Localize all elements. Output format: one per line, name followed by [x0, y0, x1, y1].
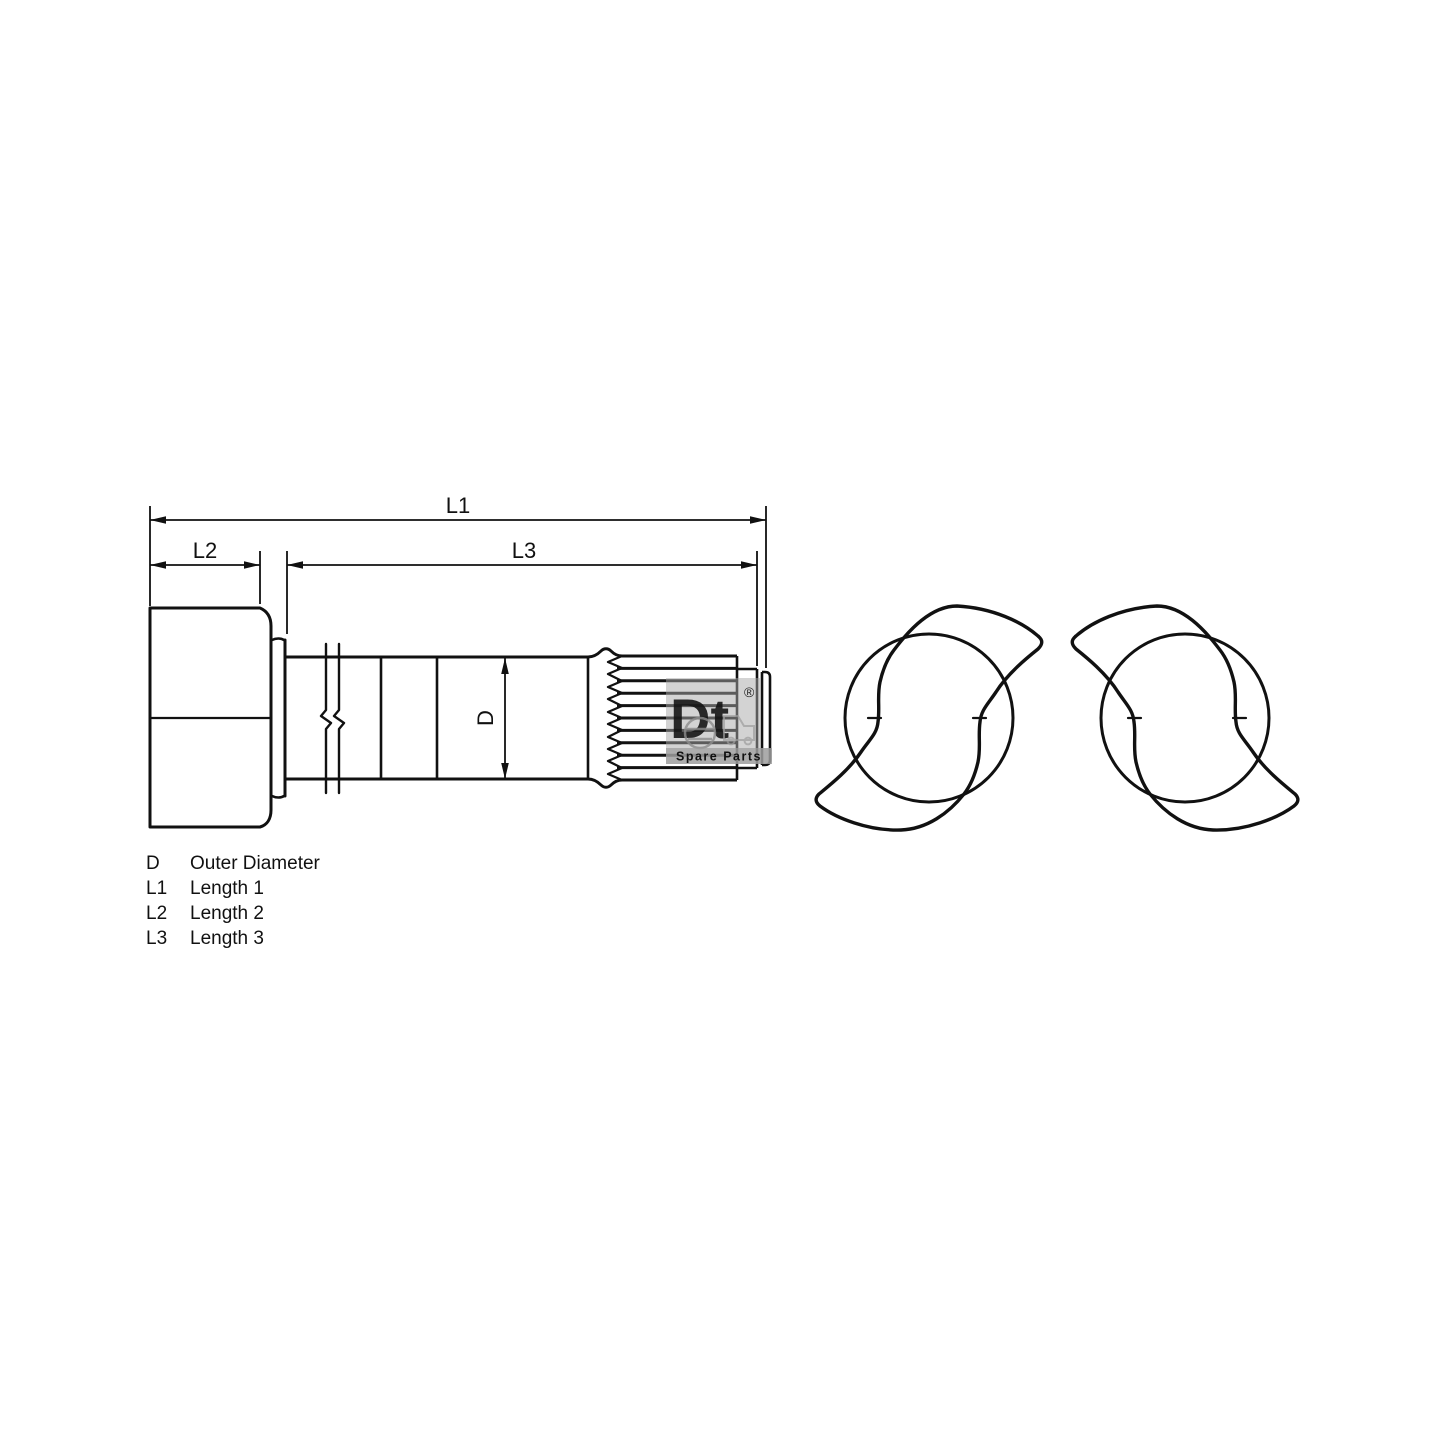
- flange-bottom-ledge: [272, 796, 284, 798]
- legend-description: Length 2: [190, 901, 264, 926]
- dt-watermark: Dt ® Spare Parts: [666, 678, 772, 764]
- break-line-left: [321, 644, 331, 793]
- technical-drawing-svg: L1 L2 L3 D: [0, 0, 1445, 1445]
- l2-arrow-left: [150, 561, 166, 569]
- spline-neck-bottom: [588, 779, 622, 787]
- dimension-l1: L1: [150, 493, 766, 668]
- l3-arrow-left: [287, 561, 303, 569]
- registered-trademark-icon: ®: [744, 684, 755, 700]
- legend-description: Length 1: [190, 876, 264, 901]
- l2-arrow-right: [244, 561, 260, 569]
- dimension-l2: L2: [150, 538, 260, 604]
- dimension-d: D: [473, 658, 509, 779]
- cam-s-outline: [816, 606, 1042, 830]
- legend-row-d: D Outer Diameter: [146, 851, 320, 876]
- l1-label: L1: [446, 493, 470, 518]
- d-arrow-top: [501, 658, 509, 674]
- legend-description: Outer Diameter: [190, 851, 320, 876]
- s-cam-profile-left: [816, 606, 1042, 830]
- legend-row-l3: L3 Length 3: [146, 926, 320, 951]
- spline-neck-top: [588, 649, 622, 657]
- break-line-right: [334, 644, 344, 793]
- l3-arrow-right: [741, 561, 757, 569]
- legend-symbol: L1: [146, 876, 190, 901]
- legend-symbol: L2: [146, 901, 190, 926]
- watermark-tagline: Spare Parts: [676, 750, 762, 764]
- d-arrow-bottom: [501, 763, 509, 779]
- legend: D Outer Diameter L1 Length 1 L2 Length 2…: [146, 851, 320, 951]
- camshaft-side-view: [150, 608, 622, 827]
- l1-arrow-left: [150, 516, 166, 524]
- legend-symbol: L3: [146, 926, 190, 951]
- legend-symbol: D: [146, 851, 190, 876]
- d-label: D: [473, 710, 498, 726]
- flange-top-ledge: [272, 639, 284, 641]
- l2-label: L2: [193, 538, 217, 563]
- legend-row-l2: L2 Length 2: [146, 901, 320, 926]
- s-cam-profile-right: [1072, 606, 1298, 830]
- l3-label: L3: [512, 538, 536, 563]
- legend-description: Length 3: [190, 926, 264, 951]
- l1-arrow-right: [750, 516, 766, 524]
- legend-row-l1: L1 Length 1: [146, 876, 320, 901]
- dimension-l3: L3: [287, 538, 757, 666]
